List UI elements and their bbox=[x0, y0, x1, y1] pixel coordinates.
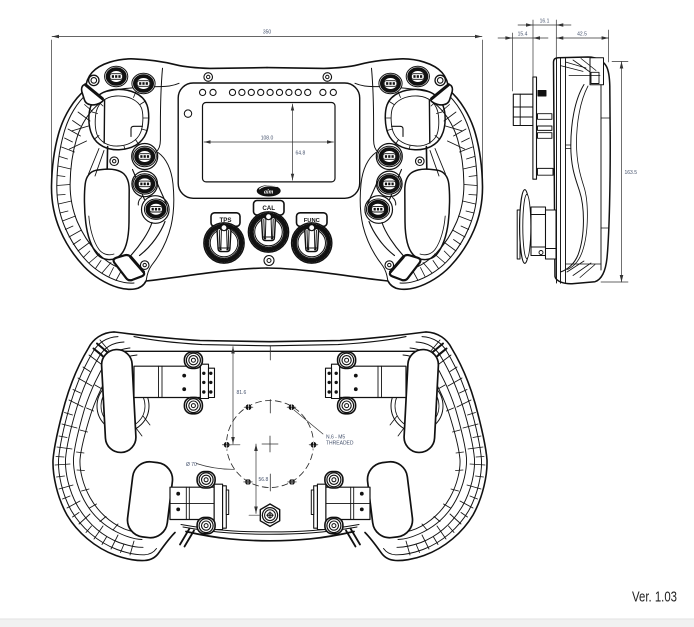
svg-text:Ø 70: Ø 70 bbox=[186, 462, 197, 468]
svg-text:56.8: 56.8 bbox=[259, 477, 269, 483]
svg-text:163.5: 163.5 bbox=[625, 170, 638, 176]
svg-text:42.5: 42.5 bbox=[577, 32, 587, 38]
svg-text:350: 350 bbox=[263, 30, 272, 36]
svg-text:15.4: 15.4 bbox=[518, 32, 528, 38]
svg-text:64.8: 64.8 bbox=[296, 151, 306, 157]
svg-text:81.6: 81.6 bbox=[237, 390, 247, 396]
svg-text:THREADED: THREADED bbox=[326, 441, 354, 447]
svg-text:CAL: CAL bbox=[262, 205, 275, 212]
svg-text:Ver. 1.03: Ver. 1.03 bbox=[632, 589, 677, 606]
svg-text:16.1: 16.1 bbox=[540, 19, 550, 25]
svg-text:108.0: 108.0 bbox=[261, 136, 274, 142]
svg-text:aim: aim bbox=[264, 189, 274, 195]
